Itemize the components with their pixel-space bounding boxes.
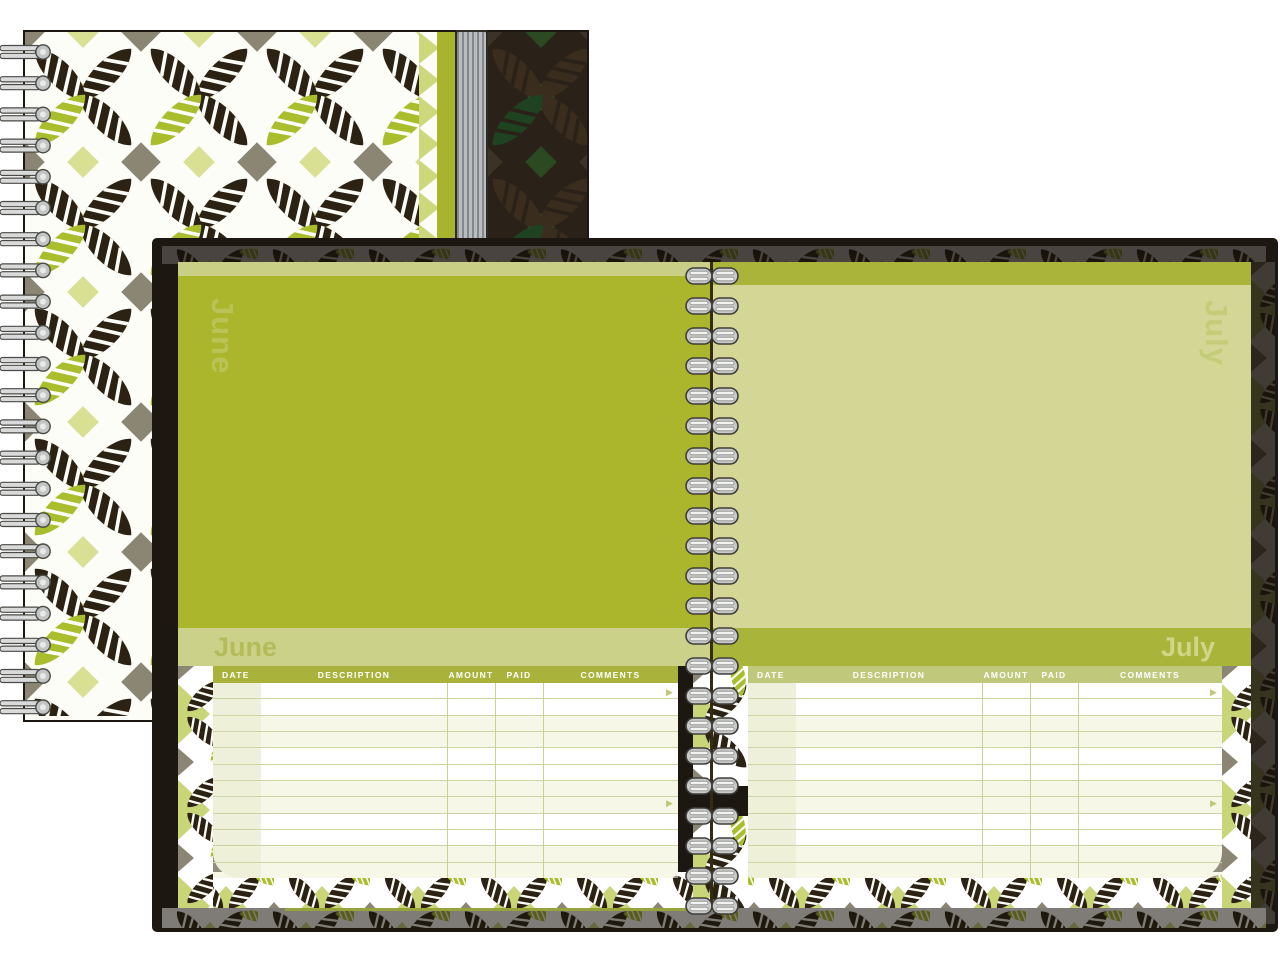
left-border-pattern [178, 666, 213, 908]
wire-coil [0, 294, 50, 308]
wire-coil [0, 326, 50, 340]
column-header-comments: COMMENTS [1078, 670, 1222, 680]
wire-coil [686, 778, 738, 794]
table-row [213, 683, 678, 698]
table-row [748, 731, 1222, 747]
row-arrow-icon: ▶ [1210, 686, 1222, 698]
wire-coil [686, 748, 738, 764]
open-planner: June June July July DATE DESCRIPTION AMO… [152, 238, 1278, 932]
column-header-paid: PAID [1030, 670, 1078, 680]
table-row [748, 829, 1222, 845]
right-edge-pattern [1251, 262, 1275, 924]
table-row [748, 747, 1222, 763]
wire-coil [0, 419, 50, 433]
column-header-date: DATE [748, 670, 796, 680]
wire-coil [686, 328, 738, 344]
table-row [213, 829, 678, 845]
row-arrow-icon: ▶ [1210, 797, 1222, 809]
table-row [213, 813, 678, 829]
table-row [748, 813, 1222, 829]
column-header-comments: COMMENTS [543, 670, 678, 680]
table-row [213, 698, 678, 714]
table-row [748, 845, 1222, 861]
wire-coil [686, 358, 738, 374]
june-month-band: June [178, 628, 713, 666]
table-row [748, 698, 1222, 714]
wire-coil [0, 357, 50, 371]
table-row [213, 780, 678, 796]
wire-coil [0, 638, 50, 652]
wire-coil [686, 418, 738, 434]
wire-coil [0, 263, 50, 277]
june-page [178, 276, 713, 628]
wire-coil [686, 718, 738, 734]
wire-coil [686, 538, 738, 554]
wire-coil [686, 658, 738, 674]
wire-coil [686, 688, 738, 704]
wire-coil [686, 838, 738, 854]
wire-coil [686, 478, 738, 494]
july-table-header: DATE DESCRIPTION AMOUNT PAID COMMENTS [748, 666, 1222, 683]
wire-coil [686, 388, 738, 404]
wire-coil [0, 76, 50, 90]
wire-coil [0, 45, 50, 59]
wire-coil [686, 898, 738, 914]
june-expense-table: DATE DESCRIPTION AMOUNT PAID COMMENTS ▶ … [213, 666, 678, 878]
june-table-header: DATE DESCRIPTION AMOUNT PAID COMMENTS [213, 666, 678, 683]
wire-coil [0, 201, 50, 215]
june-page-top-strip [178, 262, 713, 276]
elastic-strap [455, 30, 488, 246]
column-header-date: DATE [213, 670, 261, 680]
wire-coil [0, 544, 50, 558]
table-row [213, 796, 678, 812]
wire-coil [686, 598, 738, 614]
column-divider [982, 683, 983, 878]
wire-coil [0, 669, 50, 683]
wire-coil [0, 107, 50, 121]
right-border-pattern [1222, 666, 1251, 908]
table-row [213, 715, 678, 731]
column-header-amount: AMOUNT [982, 670, 1030, 680]
table-row [748, 683, 1222, 698]
june-table-body [213, 683, 678, 878]
table-row [748, 715, 1222, 731]
wire-coil [0, 606, 50, 620]
product-photo: June June July July DATE DESCRIPTION AMO… [0, 0, 1280, 960]
table-row [213, 764, 678, 780]
column-header-paid: PAID [495, 670, 543, 680]
column-header-amount: AMOUNT [447, 670, 495, 680]
table-row [748, 862, 1222, 878]
wire-coil [0, 388, 50, 402]
table-row [213, 747, 678, 763]
wire-coil [686, 508, 738, 524]
july-page-top-strip [713, 262, 1251, 285]
july-table-body [748, 683, 1222, 878]
wire-coil [686, 808, 738, 824]
wire-coil [686, 628, 738, 644]
column-header-description: DESCRIPTION [261, 670, 447, 680]
wire-coil [0, 575, 50, 589]
july-page [713, 285, 1251, 628]
table-row [748, 796, 1222, 812]
wire-coil [686, 568, 738, 584]
column-divider [1078, 683, 1079, 878]
wire-coil [0, 482, 50, 496]
column-header-description: DESCRIPTION [796, 670, 982, 680]
wire-coil [686, 448, 738, 464]
table-row [748, 780, 1222, 796]
wire-coil [686, 868, 738, 884]
wire-coil [0, 138, 50, 152]
center-spiral-binding [676, 258, 750, 918]
july-month-band: July [713, 628, 1251, 666]
july-expense-table: DATE DESCRIPTION AMOUNT PAID COMMENTS ▶ … [748, 666, 1222, 878]
table-row [748, 764, 1222, 780]
table-row [213, 845, 678, 861]
column-divider [543, 683, 544, 878]
left-spiral-binding [0, 36, 54, 716]
wire-coil [0, 450, 50, 464]
wire-coil [0, 513, 50, 527]
july-vertical-label: July [1198, 300, 1234, 440]
column-divider [495, 683, 496, 878]
wire-coil [0, 700, 50, 714]
wire-coil [0, 170, 50, 184]
wire-coil [686, 298, 738, 314]
june-vertical-label: June [204, 298, 240, 438]
table-row [213, 862, 678, 878]
wire-coil [686, 268, 738, 284]
table-row [213, 731, 678, 747]
column-divider [447, 683, 448, 878]
wire-coil [0, 232, 50, 246]
column-divider [1030, 683, 1031, 878]
